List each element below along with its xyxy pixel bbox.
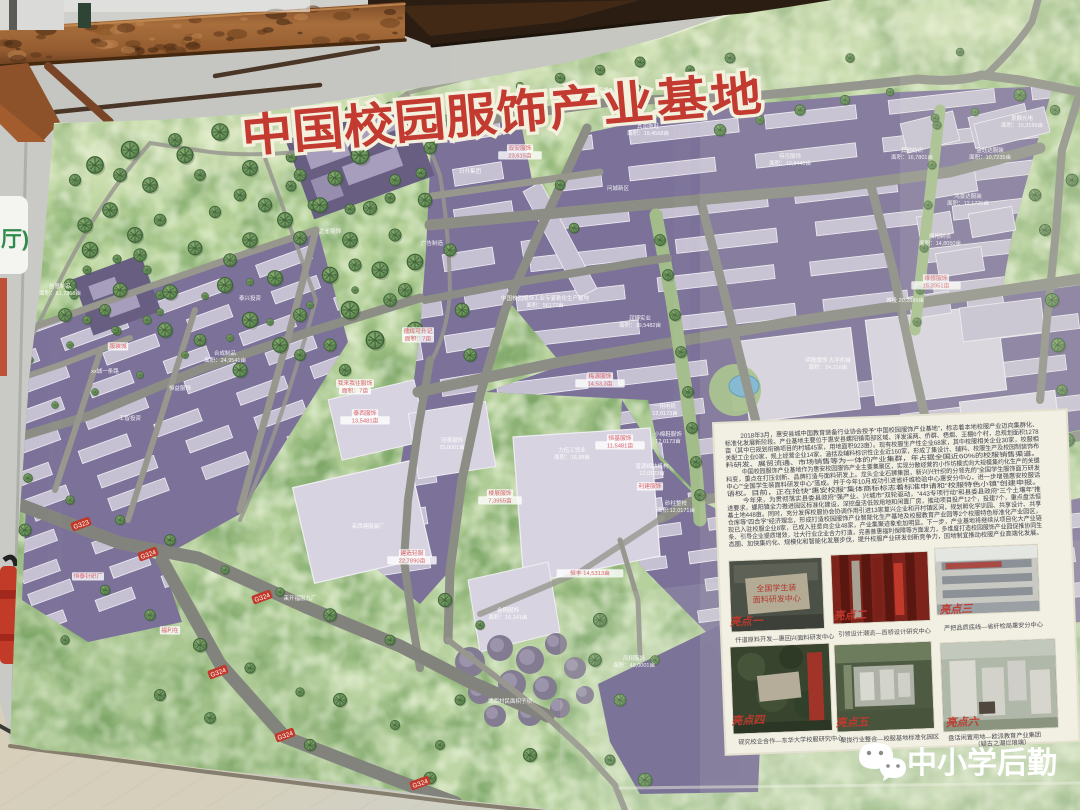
svg-text:耒开福服九厂: 耒开福服九厂 xyxy=(283,594,317,602)
svg-text:服: 服 xyxy=(444,89,499,145)
svg-text:7,3955亩: 7,3955亩 xyxy=(488,497,512,505)
svg-text:校: 校 xyxy=(342,99,397,155)
svg-text:12,0173亩: 12,0173亩 xyxy=(655,437,681,445)
svg-text:23,0001亩: 23,0001亩 xyxy=(439,443,465,451)
svg-text:面积:12,0171亩: 面积:12,0171亩 xyxy=(657,506,695,514)
svg-text:泰西服饰: 泰西服饰 xyxy=(353,409,376,417)
svg-text:产: 产 xyxy=(548,81,603,137)
svg-text:业: 业 xyxy=(601,77,656,133)
svg-text:面积：19,5482亩: 面积：19,5482亩 xyxy=(619,321,661,329)
svg-text:利建服饰: 利建服饰 xyxy=(638,482,661,490)
svg-text:合成制品: 合成制品 xyxy=(214,349,237,357)
svg-text:14,53,3亩: 14,53,3亩 xyxy=(587,380,612,388)
svg-text:面积：24,9541亩: 面积：24,9541亩 xyxy=(204,356,246,364)
svg-text:国: 国 xyxy=(291,103,346,159)
svg-text:恒泰针织厂: 恒泰针织厂 xyxy=(74,572,103,580)
svg-text:润博实业: 润博实业 xyxy=(629,314,652,322)
svg-text:德辉可升记: 德辉可升记 xyxy=(404,327,433,335)
svg-text:面积：16,141亩: 面积：16,141亩 xyxy=(489,613,528,621)
svg-text:亮点一: 亮点一 xyxy=(729,614,764,628)
svg-text:23,615亩: 23,615亩 xyxy=(508,152,532,160)
svg-text:面积：7亩: 面积：7亩 xyxy=(405,335,432,343)
svg-text:日升集团: 日升集团 xyxy=(459,167,482,175)
svg-text:之雀服饰: 之雀服饰 xyxy=(319,227,342,235)
svg-text:普源绵纺机构: 普源绵纺机构 xyxy=(635,462,669,470)
svg-text:问城新区: 问城新区 xyxy=(607,184,630,192)
svg-text:金翔服饰: 金翔服饰 xyxy=(497,606,520,614)
svg-text:园: 园 xyxy=(393,94,448,150)
svg-text:地: 地 xyxy=(709,69,764,125)
svg-text:面积：61,7268亩: 面积：61,7268亩 xyxy=(39,289,81,297)
svg-text:中: 中 xyxy=(240,107,295,163)
svg-text:楼展服饰: 楼展服饰 xyxy=(488,489,511,497)
svg-text:厅): 厅) xyxy=(1,228,29,251)
svg-text:恒基服饰: 恒基服饰 xyxy=(608,434,631,442)
svg-text:亮点五: 亮点五 xyxy=(835,715,869,729)
svg-text:饰: 饰 xyxy=(495,85,550,141)
svg-text:面积：7亩: 面积：7亩 xyxy=(342,387,369,395)
svg-text:亮点六: 亮点六 xyxy=(945,715,980,729)
svg-text:13,5481亩: 13,5481亩 xyxy=(352,417,379,425)
svg-text:xx城一条路: xx城一条路 xyxy=(91,367,119,375)
svg-text:砂柱整校: 砂柱整校 xyxy=(665,499,688,507)
svg-text:11,5481亩: 11,5481亩 xyxy=(607,442,634,450)
svg-text:中国校园服饰工业专宴勒化生产基地: 中国校园服饰工业专宴勒化生产基地 xyxy=(501,294,590,302)
svg-text:建造轻服: 建造轻服 xyxy=(400,549,423,557)
svg-text:泰兴投资: 泰兴投资 xyxy=(239,294,262,302)
svg-text:小棉鞋服饰: 小棉鞋服饰 xyxy=(654,430,682,438)
svg-text:创意制品: 创意制品 xyxy=(49,282,72,290)
svg-text:广告制造: 广告制造 xyxy=(421,239,444,247)
svg-text:我来我往服饰: 我来我往服饰 xyxy=(338,379,373,387)
svg-text:恒益服饰: 恒益服饰 xyxy=(169,384,192,392)
svg-text:耒西塘服装厂: 耒西塘服装厂 xyxy=(351,522,385,530)
svg-text:恒丰 14,5313亩: 恒丰 14,5313亩 xyxy=(570,569,610,577)
svg-text:面料研发中心: 面料研发中心 xyxy=(753,593,801,605)
svg-text:福利在: 福利在 xyxy=(161,626,179,634)
svg-text:冠泰服饰: 冠泰服饰 xyxy=(441,436,464,444)
svg-text:城西村民面枳子项: 城西村民面枳子项 xyxy=(488,697,533,705)
svg-text:面积：56172亩: 面积：56172亩 xyxy=(526,301,564,309)
svg-text:工智投资: 工智投资 xyxy=(119,414,142,422)
svg-text:亮点二: 亮点二 xyxy=(833,608,867,622)
svg-text:面积：16,88亩: 面积：16,88亩 xyxy=(554,453,590,461)
svg-text:亮点四: 亮点四 xyxy=(731,713,766,727)
svg-text:双安服饰: 双安服饰 xyxy=(508,144,531,152)
svg-text:服装城: 服装城 xyxy=(109,342,127,350)
svg-text:22,7890亩: 22,7890亩 xyxy=(399,557,426,565)
svg-text:亮点三: 亮点三 xyxy=(939,602,974,616)
svg-text:梅源服饰: 梅源服饰 xyxy=(588,372,611,380)
svg-text:中小学后勤: 中小学后勤 xyxy=(907,746,1057,780)
svg-text:12,0123亩: 12,0123亩 xyxy=(639,469,665,477)
svg-text:基: 基 xyxy=(655,73,710,129)
svg-text:力伍工贸业: 力伍工贸业 xyxy=(558,446,586,454)
svg-text:全国学生装: 全国学生装 xyxy=(756,582,796,594)
